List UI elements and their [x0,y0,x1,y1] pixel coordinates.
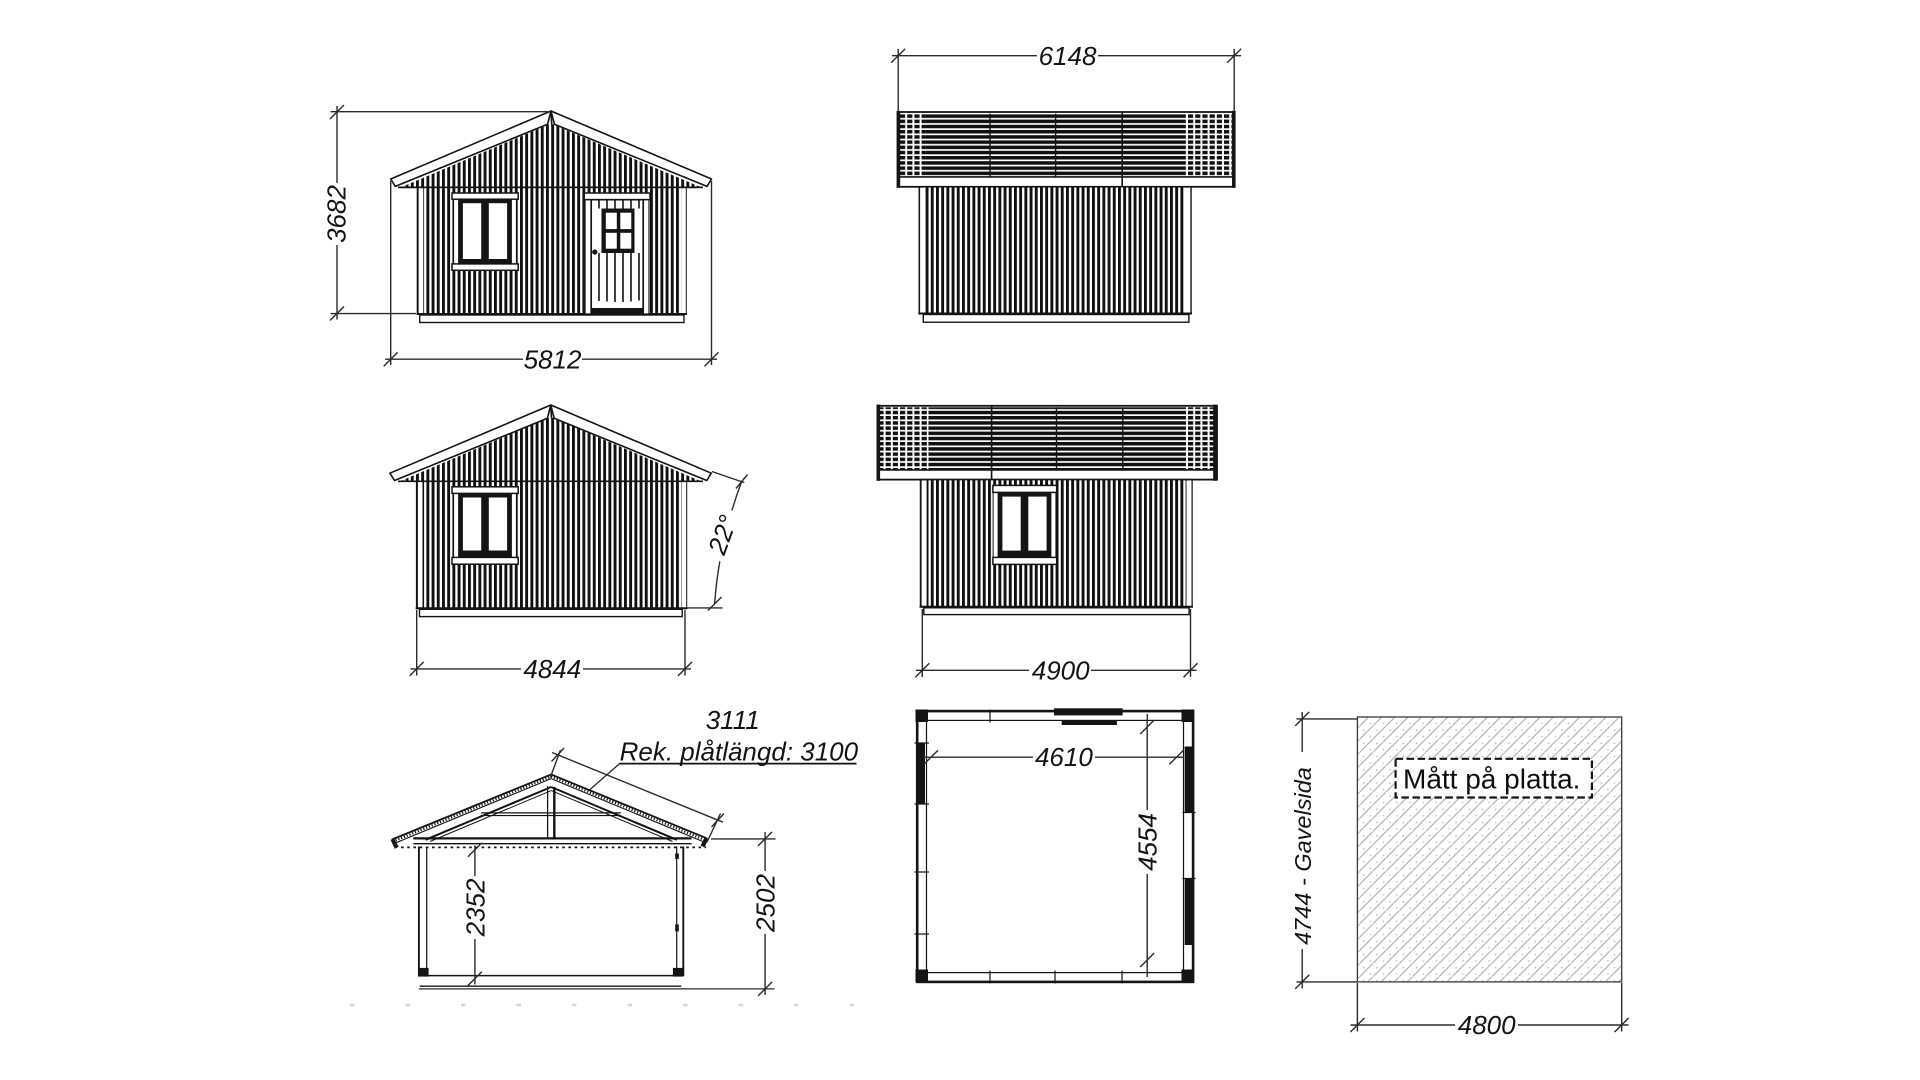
svg-text:2352: 2352 [460,878,490,937]
svg-text:5812: 5812 [524,345,582,375]
svg-text:6148: 6148 [1039,41,1097,71]
svg-text:4610: 4610 [1035,742,1093,772]
svg-text:4554: 4554 [1133,813,1163,871]
svg-text:4744 - Gavelsida: 4744 - Gavelsida [1290,767,1316,945]
svg-text:2502: 2502 [750,874,780,933]
svg-text:4844: 4844 [523,654,581,684]
svg-text:Rek. plåtlängd: 3100: Rek. plåtlängd: 3100 [620,737,859,767]
svg-text:Mått på platta.: Mått på platta. [1403,764,1580,795]
svg-text:3111: 3111 [706,705,760,735]
svg-text:3682: 3682 [322,185,352,243]
svg-text:4800: 4800 [1458,1010,1516,1040]
svg-text:4900: 4900 [1032,656,1090,686]
